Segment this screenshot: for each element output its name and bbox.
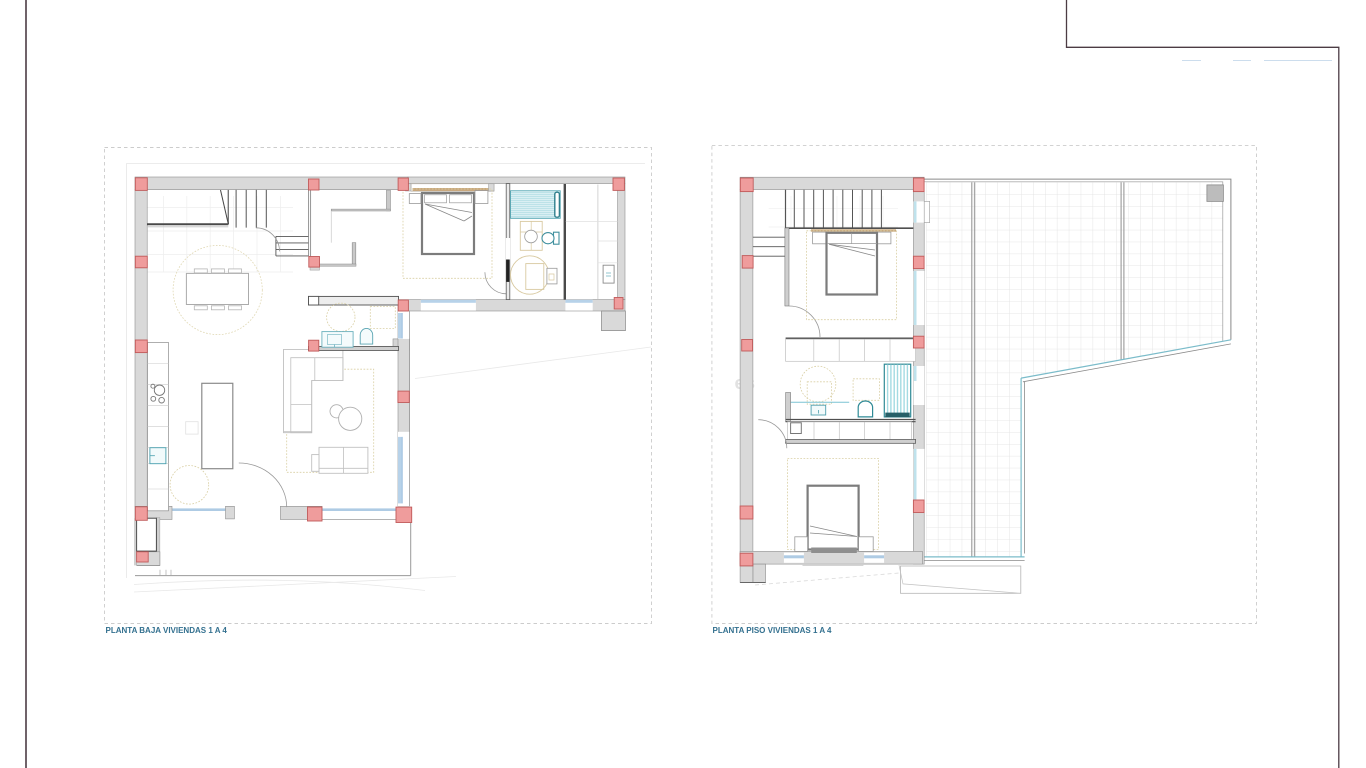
svg-text:PLANTA BAJA VIVIENDAS 1 A 4: PLANTA BAJA VIVIENDAS 1 A 4 [106, 626, 228, 635]
svg-text:PLANTA PISO VIVIENDAS 1 A 4: PLANTA PISO VIVIENDAS 1 A 4 [713, 626, 833, 635]
